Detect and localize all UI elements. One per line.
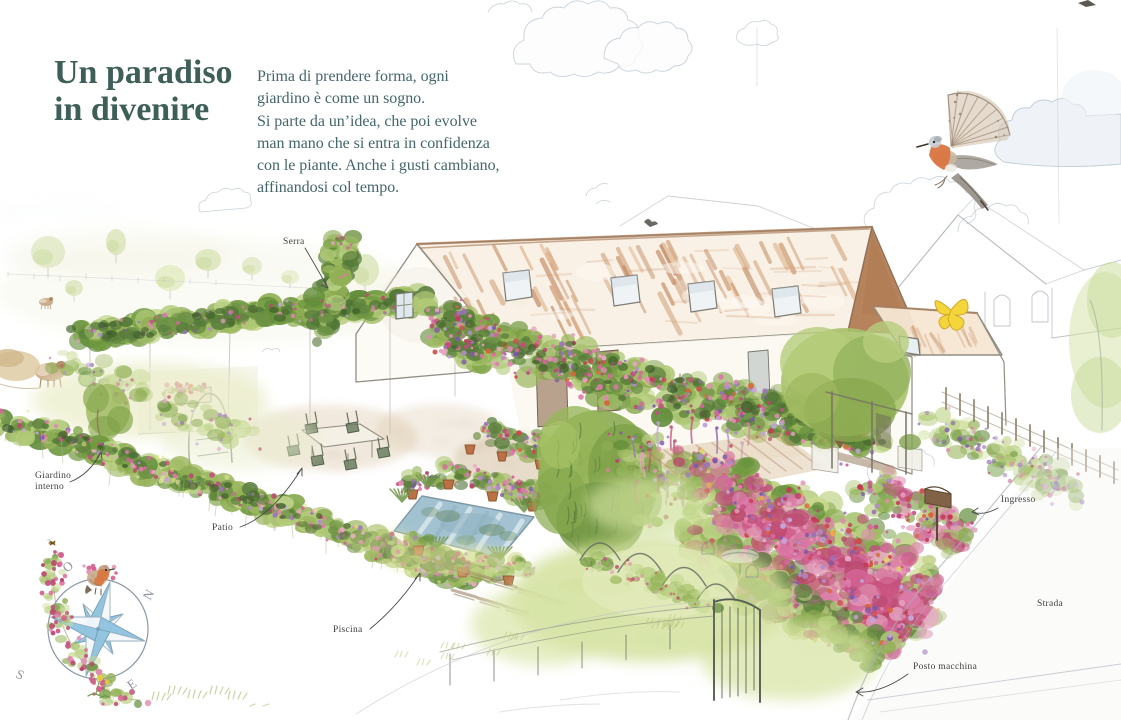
svg-text:Strada: Strada: [1037, 599, 1064, 609]
svg-text:Giardino: Giardino: [35, 471, 71, 481]
svg-text:E: E: [124, 676, 139, 693]
svg-text:Posto macchina: Posto macchina: [913, 662, 978, 672]
svg-text:Piscina: Piscina: [333, 625, 363, 635]
svg-text:Patio: Patio: [212, 523, 233, 533]
svg-text:S: S: [14, 666, 27, 683]
svg-text:Serra: Serra: [283, 237, 305, 247]
svg-text:interno: interno: [35, 482, 64, 492]
svg-text:N: N: [140, 586, 158, 602]
svg-text:Ingresso: Ingresso: [1001, 495, 1036, 505]
